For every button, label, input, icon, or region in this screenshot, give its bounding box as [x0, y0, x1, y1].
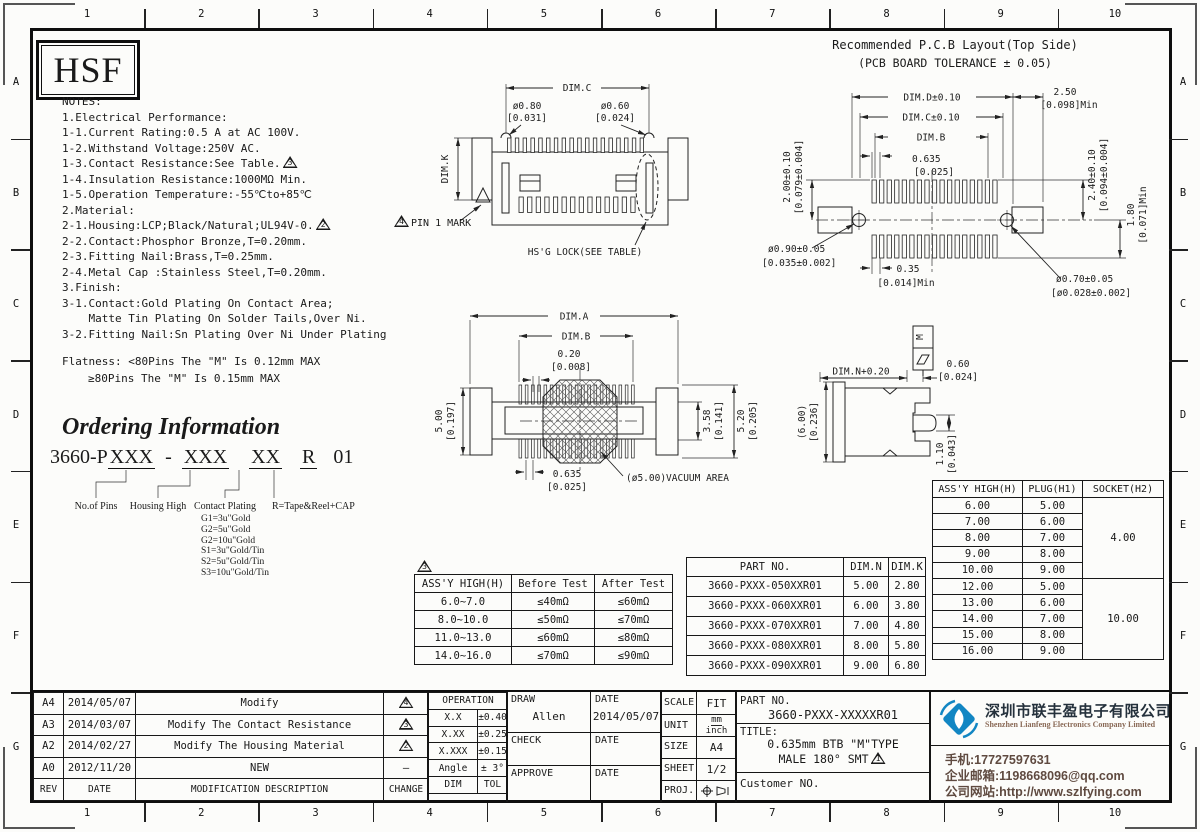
title-block: A42014/05/07Modify4A32014/03/07Modify Th…	[33, 690, 1169, 802]
note-line: 1-4.Insulation Resistance:1000MΩ Min.	[62, 172, 392, 188]
table-cell: DIM.K	[889, 558, 926, 577]
table-cell: After Test	[595, 575, 673, 593]
frame-tick	[373, 803, 375, 822]
dim-label: DIM.K	[440, 154, 451, 183]
frame-tick	[144, 9, 146, 28]
table-cell: 4.00	[1083, 498, 1164, 579]
table-row: OPERATION	[429, 693, 508, 710]
revision-flag-icon: 4	[399, 696, 414, 708]
dim-label: ø0.70±0.05	[1056, 274, 1113, 285]
check-label: CHECK	[511, 735, 541, 746]
frame-tick	[258, 9, 260, 28]
hsg-lock-label: HS'G LOCK(SEE TABLE)	[528, 247, 642, 258]
sheet-label: SHEET	[664, 763, 694, 774]
note-line: NOTES:	[62, 94, 392, 110]
frame-tick	[258, 803, 260, 822]
plating-option: G2=10u"Gold	[201, 536, 269, 547]
table-cell: ±0.25	[478, 726, 508, 743]
company-contact-line: 企业邮箱:1198668096@qq.com	[945, 765, 1142, 781]
table-cell: 14.0~16.0	[415, 647, 512, 665]
revision-flag-icon: 2	[399, 739, 414, 751]
table-cell: 7.00	[1023, 530, 1083, 546]
draw-label: DRAW	[511, 694, 535, 705]
front-view-drawing: DIM.C ø0.80 [0.031] ø0.60 [0.024] DIM.K …	[390, 75, 700, 265]
unit-value: mminch	[697, 715, 736, 736]
table-cell: 3	[384, 714, 429, 736]
table-cell: Angle	[429, 760, 478, 777]
dim-label: ø0.60	[601, 101, 630, 112]
plating-option: G1=3u"Gold	[201, 514, 269, 525]
company-contact-line: 手机:17727597631	[945, 749, 1142, 765]
table-cell: 5.00	[1023, 578, 1083, 594]
table-cell: X.X	[429, 709, 478, 726]
frame-tick	[487, 9, 489, 28]
note-line: 1-3.Contact Resistance:See Table.3	[62, 156, 392, 172]
company-contact-lines: 手机:17727597631企业邮箱:1198668096@qq.com公司网站…	[945, 749, 1142, 797]
frame-tick	[11, 249, 30, 251]
table-cell: ≤90mΩ	[595, 647, 673, 665]
table-cell: X.XXX	[429, 743, 478, 760]
dim-label: [0.098]Min	[1040, 100, 1097, 111]
table-cell: 2014/02/27	[64, 736, 136, 758]
dim-label: DIM.B	[562, 332, 591, 343]
revision-flag-icon: 1	[871, 752, 886, 764]
scale-value: FIT	[697, 697, 736, 710]
table-cell: ±0.40	[478, 709, 508, 726]
table-row: 3660-PXXX-090XXR019.006.80	[687, 656, 926, 676]
table-cell: ≤40mΩ	[512, 593, 595, 611]
frame-tick	[944, 803, 946, 822]
table-row: A32014/03/07Modify The Contact Resistanc…	[34, 714, 429, 736]
dim-label: [0.205]	[748, 401, 759, 441]
dim-label: [0.071]Min	[1138, 186, 1149, 243]
table-cell: Modify The Contact Resistance	[136, 714, 384, 736]
frame-column-label: 5	[533, 8, 555, 20]
unit-label: UNIT	[664, 720, 688, 731]
note-line: 2-4.Metal Cap :Stainless Steel,T=0.20mm.	[62, 265, 392, 281]
revision-flag-icon: 3	[283, 156, 298, 168]
table-cell: 10.00	[1083, 578, 1164, 659]
revision-flag-icon: 4	[394, 215, 409, 227]
frame-tick	[1169, 582, 1188, 584]
note-line: 1.Electrical Performance:	[62, 110, 392, 126]
dim-label: (6.00)	[797, 405, 808, 439]
dim-label: [0.035±0.002]	[762, 258, 836, 269]
frame-column-label: 10	[1104, 8, 1126, 20]
table-cell: REV	[34, 779, 64, 801]
company-name-en: Shenzhen Lianfeng Electronics Company Li…	[985, 720, 1155, 729]
dim-label: 2.50	[1054, 87, 1077, 98]
table-row: PART NO.DIM.NDIM.K	[687, 558, 926, 577]
dim-label: 1.10	[935, 442, 946, 465]
dim-label: ø0.80	[513, 101, 542, 112]
table-cell: 12.00	[933, 578, 1023, 594]
table-cell: A0	[34, 757, 64, 779]
table-cell: Before Test	[512, 575, 595, 593]
table-row: A02012/11/20NEW—	[34, 757, 429, 779]
table-cell: PART NO.	[687, 558, 844, 577]
dim-label: 0.20	[558, 349, 581, 360]
table-cell: 11.0~13.0	[415, 629, 512, 647]
table-cell: —	[384, 757, 429, 779]
table-cell: 3660-PXXX-060XXR01	[687, 596, 844, 616]
table-cell: MODIFICATION DESCRIPTION	[136, 779, 384, 801]
frame-tick	[11, 139, 30, 141]
top-view-drawing: DIM.A DIM.B 0.20 [0.008] 5.00 [0.197] 3.…	[430, 300, 775, 512]
frame-row-label: B	[5, 187, 27, 199]
sheet-value: 1/2	[697, 763, 736, 776]
table-row: A42014/05/07Modify4	[34, 693, 429, 715]
frame-tick	[829, 9, 831, 28]
dim-label: [0.197]	[446, 401, 457, 441]
note-line: 1-1.Current Rating:0.5 A at AC 100V.	[62, 125, 392, 141]
table-cell: OPERATION	[429, 693, 508, 710]
ordering-label: R=Tape&Reel+CAP	[272, 501, 355, 512]
flatness-flag-label: M	[915, 334, 926, 340]
table-cell: 2.80	[889, 577, 926, 597]
table-row: 14.0~16.0≤70mΩ≤90mΩ	[415, 647, 673, 665]
table-cell: ≤80mΩ	[595, 629, 673, 647]
table-cell: 3660-PXXX-050XXR01	[687, 577, 844, 597]
table-row: 3660-PXXX-050XXR015.002.80	[687, 577, 926, 597]
side-view-drawing: DIM.N+0.20 0.60 [0.024] (6.00) [0.236] 1…	[795, 318, 995, 493]
dim-label: 1.80	[1126, 203, 1137, 226]
frame-tick	[11, 692, 30, 694]
dim-label: 0.35	[897, 264, 920, 275]
table-cell: 7.00	[1023, 611, 1083, 627]
dim-label: DIM.B	[917, 133, 946, 144]
table-row: 8.0~10.0≤50mΩ≤70mΩ	[415, 611, 673, 629]
frame-tick	[601, 803, 603, 822]
table-cell: 14.00	[933, 611, 1023, 627]
frame-tick	[1169, 692, 1188, 694]
table-cell: Modify The Housing Material	[136, 736, 384, 758]
plating-option: G2=5u"Gold	[201, 525, 269, 536]
draw-name: Allen	[507, 710, 591, 723]
table-cell: PLUG(H1)	[1023, 481, 1083, 498]
table-cell: 13.00	[933, 595, 1023, 611]
frame-row-label: A	[5, 76, 27, 88]
dim-label: 5.00	[434, 409, 445, 432]
notes-block: NOTES:1.Electrical Performance:1-1.Curre…	[62, 94, 392, 342]
pcb-layout-title: Recommended P.C.B Layout(Top Side)	[780, 38, 1130, 52]
frame-tick	[715, 803, 717, 822]
scale-label: SCALE	[664, 697, 694, 708]
frame-tick	[11, 582, 30, 584]
table-row: X.XX±0.25	[429, 726, 508, 743]
table-cell: 9.00	[1023, 562, 1083, 578]
table-row: 3660-PXXX-080XXR018.005.80	[687, 636, 926, 656]
table-cell: 6.00	[1023, 595, 1083, 611]
ordering-label: Contact Plating	[165, 501, 285, 512]
dim-label: 0.60	[947, 359, 970, 370]
table-cell: 6.00	[844, 596, 889, 616]
dim-label: [ø0.028±0.002]	[1051, 288, 1131, 299]
frame-row-label: E	[5, 519, 27, 531]
frame-column-label: 9	[990, 8, 1012, 20]
table-cell: X.XX	[429, 726, 478, 743]
frame-column-label: 2	[190, 8, 212, 20]
table-cell: ≤50mΩ	[512, 611, 595, 629]
frame-column-label: 10	[1104, 807, 1126, 819]
frame-tick	[1058, 803, 1060, 822]
plating-option: S2=5u"Gold/Tin	[201, 557, 269, 568]
table-row: 3660-PXXX-070XXR017.004.80	[687, 616, 926, 636]
dim-label: DIM.A	[560, 312, 589, 323]
dim-label: [0.024]	[938, 372, 978, 383]
table-cell: ASS'Y HIGH(H)	[933, 481, 1023, 498]
frame-column-label: 7	[761, 8, 783, 20]
company-contact-line: 公司网站:http://www.szlfying.com	[945, 781, 1142, 797]
table-row: X.X±0.40	[429, 709, 508, 726]
note-line: 2-3.Fitting Nail:Brass,T=0.25mm.	[62, 249, 392, 265]
table-row: Angle± 3°	[429, 760, 508, 777]
table-cell: 4.80	[889, 616, 926, 636]
pin1-mark-label: 4PIN 1 MARK	[392, 215, 471, 229]
table-cell: 16.00	[933, 643, 1023, 659]
frame-tick	[373, 9, 375, 28]
dim-label: 5.20	[736, 409, 747, 432]
table-row: 12.005.0010.00	[933, 578, 1164, 594]
table-cell: 3.80	[889, 596, 926, 616]
table-cell: 8.00	[1023, 546, 1083, 562]
frame-column-label: 4	[419, 807, 441, 819]
company-name-cn: 深圳市联丰盈电子有限公司	[985, 700, 1167, 721]
dim-label: DIM.N+0.20	[832, 367, 889, 378]
frame-column-label: 5	[533, 807, 555, 819]
dim-label: [0.031]	[507, 113, 547, 124]
dim-label: 0.635	[553, 469, 582, 480]
frame-tick	[1169, 360, 1188, 362]
table-cell: 2014/03/07	[64, 714, 136, 736]
dim-label: [0.043]	[947, 434, 958, 474]
frame-row-label: D	[1172, 409, 1194, 421]
dim-label: DIM.D±0.10	[903, 93, 960, 104]
table-row: DIMTOL	[429, 776, 508, 793]
table-cell: ≤70mΩ	[512, 647, 595, 665]
note-line: 1-2.Withstand Voltage:250V AC.	[62, 141, 392, 157]
frame-tick	[1169, 471, 1188, 473]
note-line: 3-1.Contact:Gold Plating On Contact Area…	[62, 296, 392, 312]
table-cell: TOL	[478, 776, 508, 793]
plating-option: S1=3u"Gold/Tin	[201, 546, 269, 557]
dim-label: 2.40±0.10	[1087, 149, 1098, 201]
table-row: REVDATEMODIFICATION DESCRIPTIONCHANGE	[34, 779, 429, 801]
approve-label: APPROVE	[511, 768, 553, 779]
table-cell: 4	[384, 693, 429, 715]
table-cell: DATE	[64, 779, 136, 801]
table-cell: 8.0~10.0	[415, 611, 512, 629]
hsf-logo-text: HSF	[41, 45, 135, 95]
table-cell: 9.00	[933, 546, 1023, 562]
note-line: 2.Material:	[62, 203, 392, 219]
revision-flag-icon: 3	[417, 560, 432, 572]
date-label: DATE	[595, 735, 619, 746]
dim-label: [0.094±0.004]	[1099, 138, 1110, 212]
table-row: 11.0~13.0≤60mΩ≤80mΩ	[415, 629, 673, 647]
table-cell: 2014/05/07	[64, 693, 136, 715]
frame-column-label: 2	[190, 807, 212, 819]
frame-column-label: 6	[647, 807, 669, 819]
plating-options-list: G1=3u"GoldG2=5u"GoldG2=10u"GoldS1=3u"Gol…	[201, 514, 269, 579]
table-cell: 7.00	[933, 514, 1023, 530]
title-line-2: MALE 180° SMT1	[736, 752, 930, 766]
drawing-sheet: 1122334455667788991010AABBCCDDEEFFGG HSF…	[0, 0, 1200, 832]
company-logo	[936, 696, 982, 742]
frame-tick	[11, 360, 30, 362]
frame-tick	[11, 471, 30, 473]
vacuum-area-label: (ø5.00)VACUUM AREA	[626, 473, 729, 484]
table-cell: 15.00	[933, 627, 1023, 643]
table-cell: ASS'Y HIGH(H)	[415, 575, 512, 593]
dim-label: [0.079±0.004]	[794, 140, 805, 214]
table-cell: ± 3°	[478, 760, 508, 777]
contact-table-flag: 3	[415, 556, 434, 575]
table-cell: A4	[34, 693, 64, 715]
dim-label: DIM.C±0.10	[902, 113, 959, 124]
table-cell: 8.00	[844, 636, 889, 656]
frame-column-label: 4	[419, 8, 441, 20]
size-value: A4	[697, 741, 736, 754]
table-cell: 9.00	[1023, 643, 1083, 659]
dim-label: [0.141]	[714, 401, 725, 441]
table-row: A22014/02/27Modify The Housing Material2	[34, 736, 429, 758]
revision-flag-icon: 3	[399, 718, 414, 730]
frame-column-label: 8	[876, 807, 898, 819]
table-row: 6.0~7.0≤40mΩ≤60mΩ	[415, 593, 673, 611]
dim-label: [0.024]	[595, 113, 635, 124]
frame-row-label: G	[5, 741, 27, 753]
table-cell: Modify	[136, 693, 384, 715]
date-label: DATE	[595, 694, 619, 705]
frame-column-label: 6	[647, 8, 669, 20]
table-cell: 3660-PXXX-070XXR01	[687, 616, 844, 636]
table-cell: 9.00	[844, 656, 889, 676]
table-cell: 2	[384, 736, 429, 758]
dim-label: ø0.90±0.05	[768, 244, 825, 255]
table-cell: 6.0~7.0	[415, 593, 512, 611]
table-cell: ≤60mΩ	[595, 593, 673, 611]
projection-label: PROJ.	[664, 785, 694, 796]
frame-tick	[487, 803, 489, 822]
part-no-value: 3660-PXXX-XXXXXR01	[736, 708, 930, 722]
table-cell: DIM.N	[844, 558, 889, 577]
frame-tick	[601, 9, 603, 28]
table-cell: 5.00	[844, 577, 889, 597]
table-row: 3660-PXXX-060XXR016.003.80	[687, 596, 926, 616]
frame-row-label: F	[1172, 630, 1194, 642]
table-cell: A3	[34, 714, 64, 736]
table-cell: ≤70mΩ	[595, 611, 673, 629]
hsf-logo-box: HSF	[36, 40, 140, 100]
plating-option: S3=10u"Gold/Tin	[201, 568, 269, 579]
ordering-title: Ordering Information	[62, 414, 280, 441]
frame-column-label: 1	[76, 8, 98, 20]
third-angle-projection-icon	[701, 784, 733, 798]
table-cell: 7.00	[844, 616, 889, 636]
dim-label: [0.025]	[914, 167, 954, 178]
frame-column-label: 7	[761, 807, 783, 819]
table-cell: 8.00	[1023, 627, 1083, 643]
table-cell: 3660-PXXX-090XXR01	[687, 656, 844, 676]
note-line: 2-1.Housing:LCP;Black/Natural;UL94V-0.2	[62, 218, 392, 234]
table-row: 6.005.004.00	[933, 498, 1164, 514]
frame-column-label: 9	[990, 807, 1012, 819]
table-cell: 10.00	[933, 562, 1023, 578]
table-cell: 6.80	[889, 656, 926, 676]
frame-tick	[1058, 9, 1060, 28]
table-cell: 5.00	[1023, 498, 1083, 514]
table-cell: SOCKET(H2)	[1083, 481, 1164, 498]
note-line: 3.Finish:	[62, 280, 392, 296]
table-row: X.XXX±0.15	[429, 743, 508, 760]
note-line: 3-2.Fitting Nail:Sn Plating Over Ni Unde…	[62, 327, 392, 343]
frame-tick	[944, 9, 946, 28]
table-cell: 5.80	[889, 636, 926, 656]
date-label: DATE	[595, 768, 619, 779]
frame-row-label: D	[5, 409, 27, 421]
revision-flag-icon: 2	[316, 218, 331, 230]
frame-column-label: 3	[305, 807, 327, 819]
table-cell: NEW	[136, 757, 384, 779]
frame-tick	[715, 9, 717, 28]
dim-label: [0.236]	[809, 402, 820, 442]
pcb-layout-subtitle: (PCB BOARD TOLERANCE ± 0.05)	[780, 56, 1130, 70]
frame-column-label: 1	[76, 807, 98, 819]
table-cell: A2	[34, 736, 64, 758]
dim-label: [0.014]Min	[877, 278, 934, 289]
pcb-layout-drawing: DIM.D±0.10 DIM.C±0.10 DIM.B 2.50 [0.098]…	[760, 82, 1180, 312]
frame-column-label: 8	[876, 8, 898, 20]
frame-column-label: 3	[305, 8, 327, 20]
dim-label: 2.00±0.10	[782, 151, 793, 203]
note-line: 2-2.Contact:Phosphor Bronze,T=0.20mm.	[62, 234, 392, 250]
flatness-note-2: ≥80Pins The "M" Is 0.15mm MAX	[88, 372, 280, 385]
table-row: ASS'Y HIGH(H)Before TestAfter Test	[415, 575, 673, 593]
dim-label: [0.025]	[547, 482, 587, 493]
table-cell: 2012/11/20	[64, 757, 136, 779]
title-line-1: 0.635mm BTB "M"TYPE	[736, 737, 930, 751]
dim-label: 3.58	[702, 409, 713, 432]
frame-row-label: E	[1172, 519, 1194, 531]
frame-row-label: F	[5, 630, 27, 642]
table-cell: 3660-PXXX-080XXR01	[687, 636, 844, 656]
table-cell: 8.00	[933, 530, 1023, 546]
draw-date: 2014/05/07	[591, 710, 661, 723]
frame-row-label: G	[1172, 741, 1194, 753]
table-cell: 6.00	[933, 498, 1023, 514]
table-cell: 6.00	[1023, 514, 1083, 530]
table-cell: ≤60mΩ	[512, 629, 595, 647]
frame-tick	[144, 803, 146, 822]
table-cell: ±0.15	[478, 743, 508, 760]
part-no-label: PART NO.	[740, 695, 791, 707]
frame-tick	[829, 803, 831, 822]
note-line: 1-5.Operation Temperature:-55℃to+85℃	[62, 187, 392, 203]
dim-label: DIM.C	[563, 83, 592, 94]
note-line: Matte Tin Plating On Solder Tails,Over N…	[62, 311, 392, 327]
frame-row-label: C	[5, 298, 27, 310]
customer-no-label: Customer NO.	[740, 777, 819, 790]
flatness-note-1: Flatness: <80Pins The "M" Is 0.12mm MAX	[62, 355, 320, 368]
dim-label: 0.635	[912, 154, 941, 165]
table-row: ASS'Y HIGH(H)PLUG(H1)SOCKET(H2)	[933, 481, 1164, 498]
dim-label: [0.008]	[551, 362, 591, 373]
table-cell: DIM	[429, 776, 478, 793]
size-label: SIZE	[664, 741, 688, 752]
table-cell: CHANGE	[384, 779, 429, 801]
